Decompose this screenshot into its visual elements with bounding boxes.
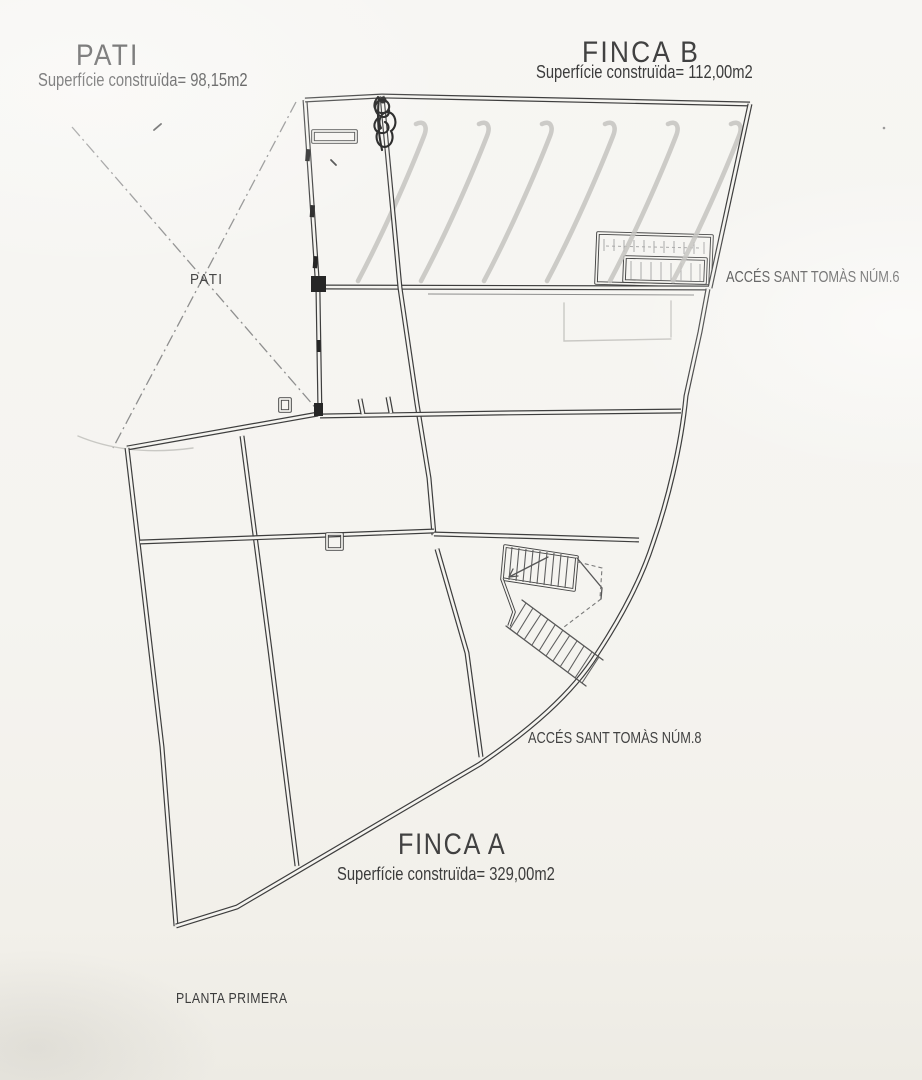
faint-pencil-outline <box>564 301 671 341</box>
pencil-specks <box>154 124 885 165</box>
door-block <box>311 276 326 292</box>
pati-area-label: Superfície construïda= 98,15m2 <box>38 70 248 90</box>
door-tick <box>314 403 323 416</box>
pati-title: PATI <box>76 39 140 73</box>
door-tick <box>305 149 310 161</box>
door-tick <box>317 340 321 352</box>
finca-a-title: FINCA A <box>398 828 506 862</box>
finca-b-hatching <box>358 123 770 281</box>
access-num6-label: ACCÉS SANT TOMÀS NÚM.6 <box>726 269 900 287</box>
floor-plan-drawing <box>0 0 922 1080</box>
scanned-floor-plan-page: PATI Superfície construïda= 98,15m2 FINC… <box>0 0 922 1080</box>
door-tick <box>313 256 318 268</box>
finca-a-area-label: Superfície construïda= 329,00m2 <box>337 864 555 884</box>
finca-b-area-label: Superfície construïda= 112,00m2 <box>536 62 753 82</box>
access-num8-label: ACCÉS SANT TOMÀS NÚM.8 <box>528 730 702 748</box>
floor-title: PLANTA PRIMERA <box>176 991 287 1008</box>
building-walls <box>127 96 750 926</box>
door-tick <box>310 205 315 217</box>
pati-room-label: PATI <box>190 272 223 289</box>
